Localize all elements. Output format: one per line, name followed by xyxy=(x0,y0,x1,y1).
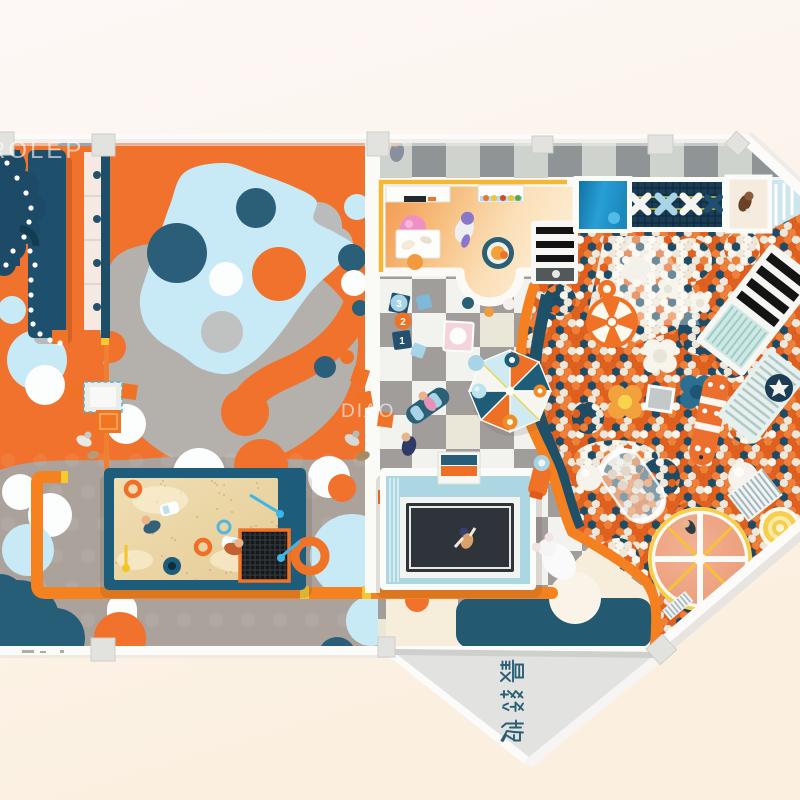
svg-text:1: 1 xyxy=(399,336,405,347)
svg-text:3: 3 xyxy=(396,299,402,310)
svg-text:2: 2 xyxy=(400,317,406,328)
svg-text:ROLEP: ROLEP xyxy=(0,137,84,164)
svg-text:DIAO: DIAO xyxy=(341,401,395,422)
